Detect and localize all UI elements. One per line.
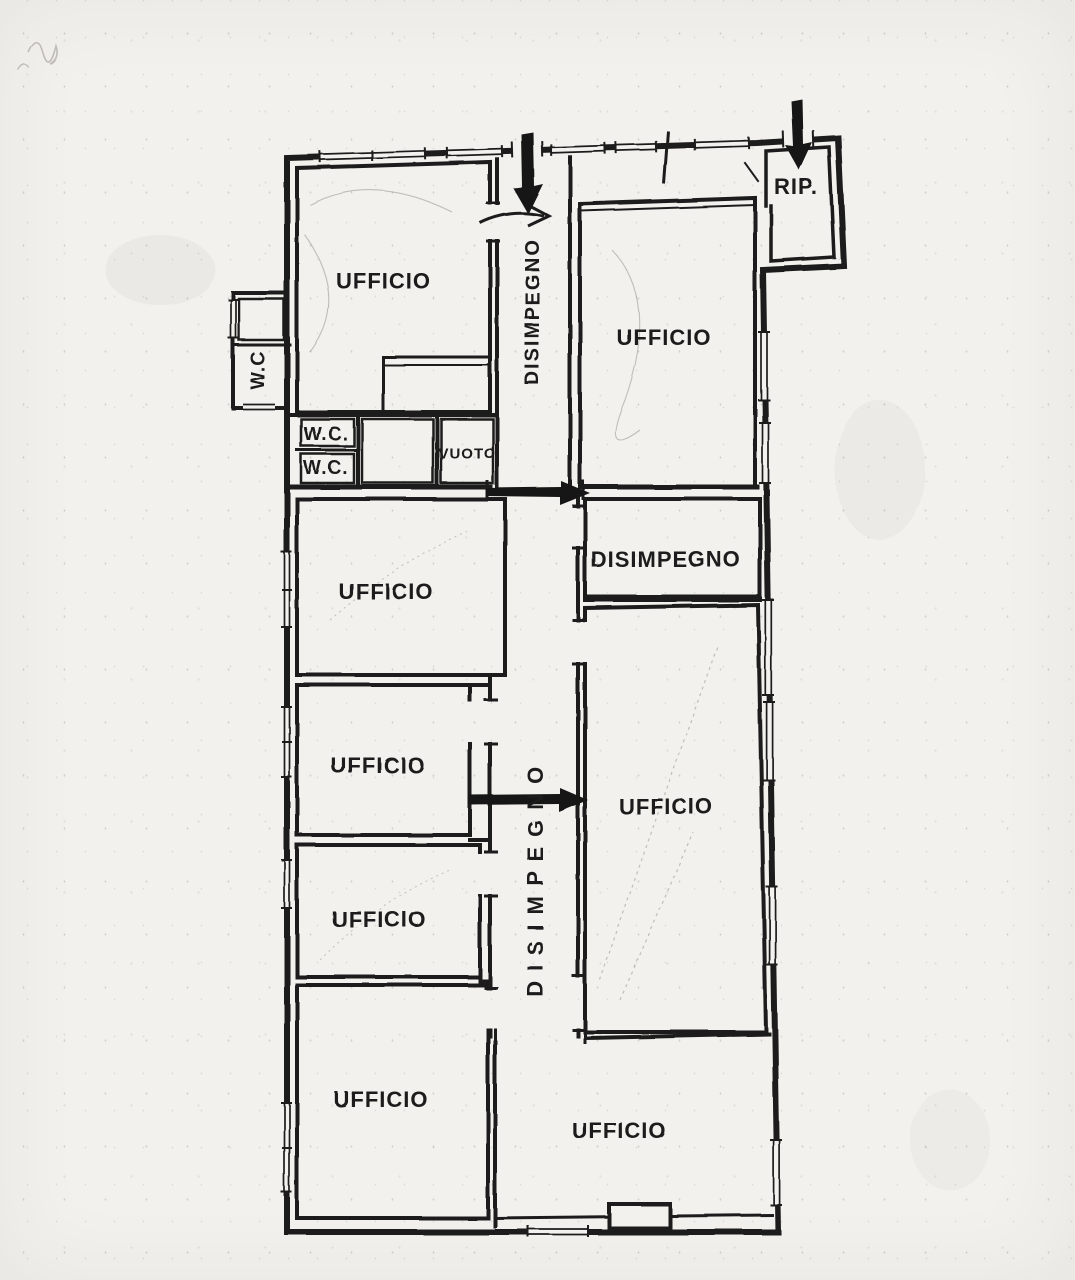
label-wc-lower: W.C. xyxy=(303,458,348,479)
room-ufficio-top-right-innerline xyxy=(580,205,755,211)
label-ripostiglio: RIP. xyxy=(774,174,818,199)
door-arrow-top xyxy=(480,206,549,226)
label-ufficio-top-right: UFFICIO xyxy=(617,325,712,350)
mid-room-inner xyxy=(362,419,433,483)
window-left-2 xyxy=(281,707,292,777)
label-ufficio-bottom-right: UFFICIO xyxy=(572,1118,667,1143)
window-right-1 xyxy=(758,332,770,400)
label-ufficio-mid-left-1: UFFICIO xyxy=(339,579,434,604)
window-bottom-1 xyxy=(528,1225,588,1238)
window-top-5 xyxy=(695,137,749,151)
label-disimpegno-top: DISIMPEGNO xyxy=(522,238,544,386)
window-right-5 xyxy=(770,1140,782,1205)
room-labels: UFFICIO DISIMPEGNO UFFICIO RIP. W.C W.C.… xyxy=(248,174,818,1143)
floor-plan-scan: UFFICIO DISIMPEGNO UFFICIO RIP. W.C W.C.… xyxy=(0,0,1075,1280)
label-ufficio-bottom-left: UFFICIO xyxy=(334,1087,429,1112)
window-top-3 xyxy=(551,142,605,156)
label-wc-upper: W.C. xyxy=(303,424,348,445)
window-left-4 xyxy=(281,1103,292,1192)
window-right-2 xyxy=(762,600,774,695)
window-right-3 xyxy=(763,702,775,780)
label-disimpegno-right: DISIMPEGNO xyxy=(591,547,742,572)
window-top-4 xyxy=(616,140,656,153)
room-ufficio-bottom-right-top xyxy=(587,1034,769,1038)
passage-arrow-upper xyxy=(486,481,590,505)
window-top-1 xyxy=(320,147,425,162)
label-ufficio-top-left: UFFICIO xyxy=(336,268,431,293)
window-right-1b xyxy=(759,423,771,483)
door-annex-bottom xyxy=(243,402,275,412)
window-right-4 xyxy=(766,887,778,965)
window-annex-left xyxy=(228,300,239,338)
label-disimpegno-central: DISIMPEGNO xyxy=(523,757,548,998)
floor-plan-drawing: UFFICIO DISIMPEGNO UFFICIO RIP. W.C W.C.… xyxy=(0,0,1075,1280)
bottom-wall-protrusion xyxy=(609,1204,670,1228)
label-wc-external: W.C xyxy=(248,351,269,390)
wc-annex-inner xyxy=(239,299,284,340)
wc-annex xyxy=(233,293,287,408)
label-ufficio-mid-right: UFFICIO xyxy=(619,794,714,819)
label-ufficio-mid-left-2: UFFICIO xyxy=(331,753,426,778)
windows xyxy=(228,137,782,1238)
window-left-1 xyxy=(281,552,292,627)
label-vuoto: VUOTO xyxy=(438,445,496,462)
label-ufficio-mid-left-3: UFFICIO xyxy=(332,907,427,932)
window-top-2 xyxy=(447,145,502,159)
section-tick-mark xyxy=(664,131,668,184)
window-left-3 xyxy=(281,860,292,908)
rip-door-swing xyxy=(745,163,758,181)
